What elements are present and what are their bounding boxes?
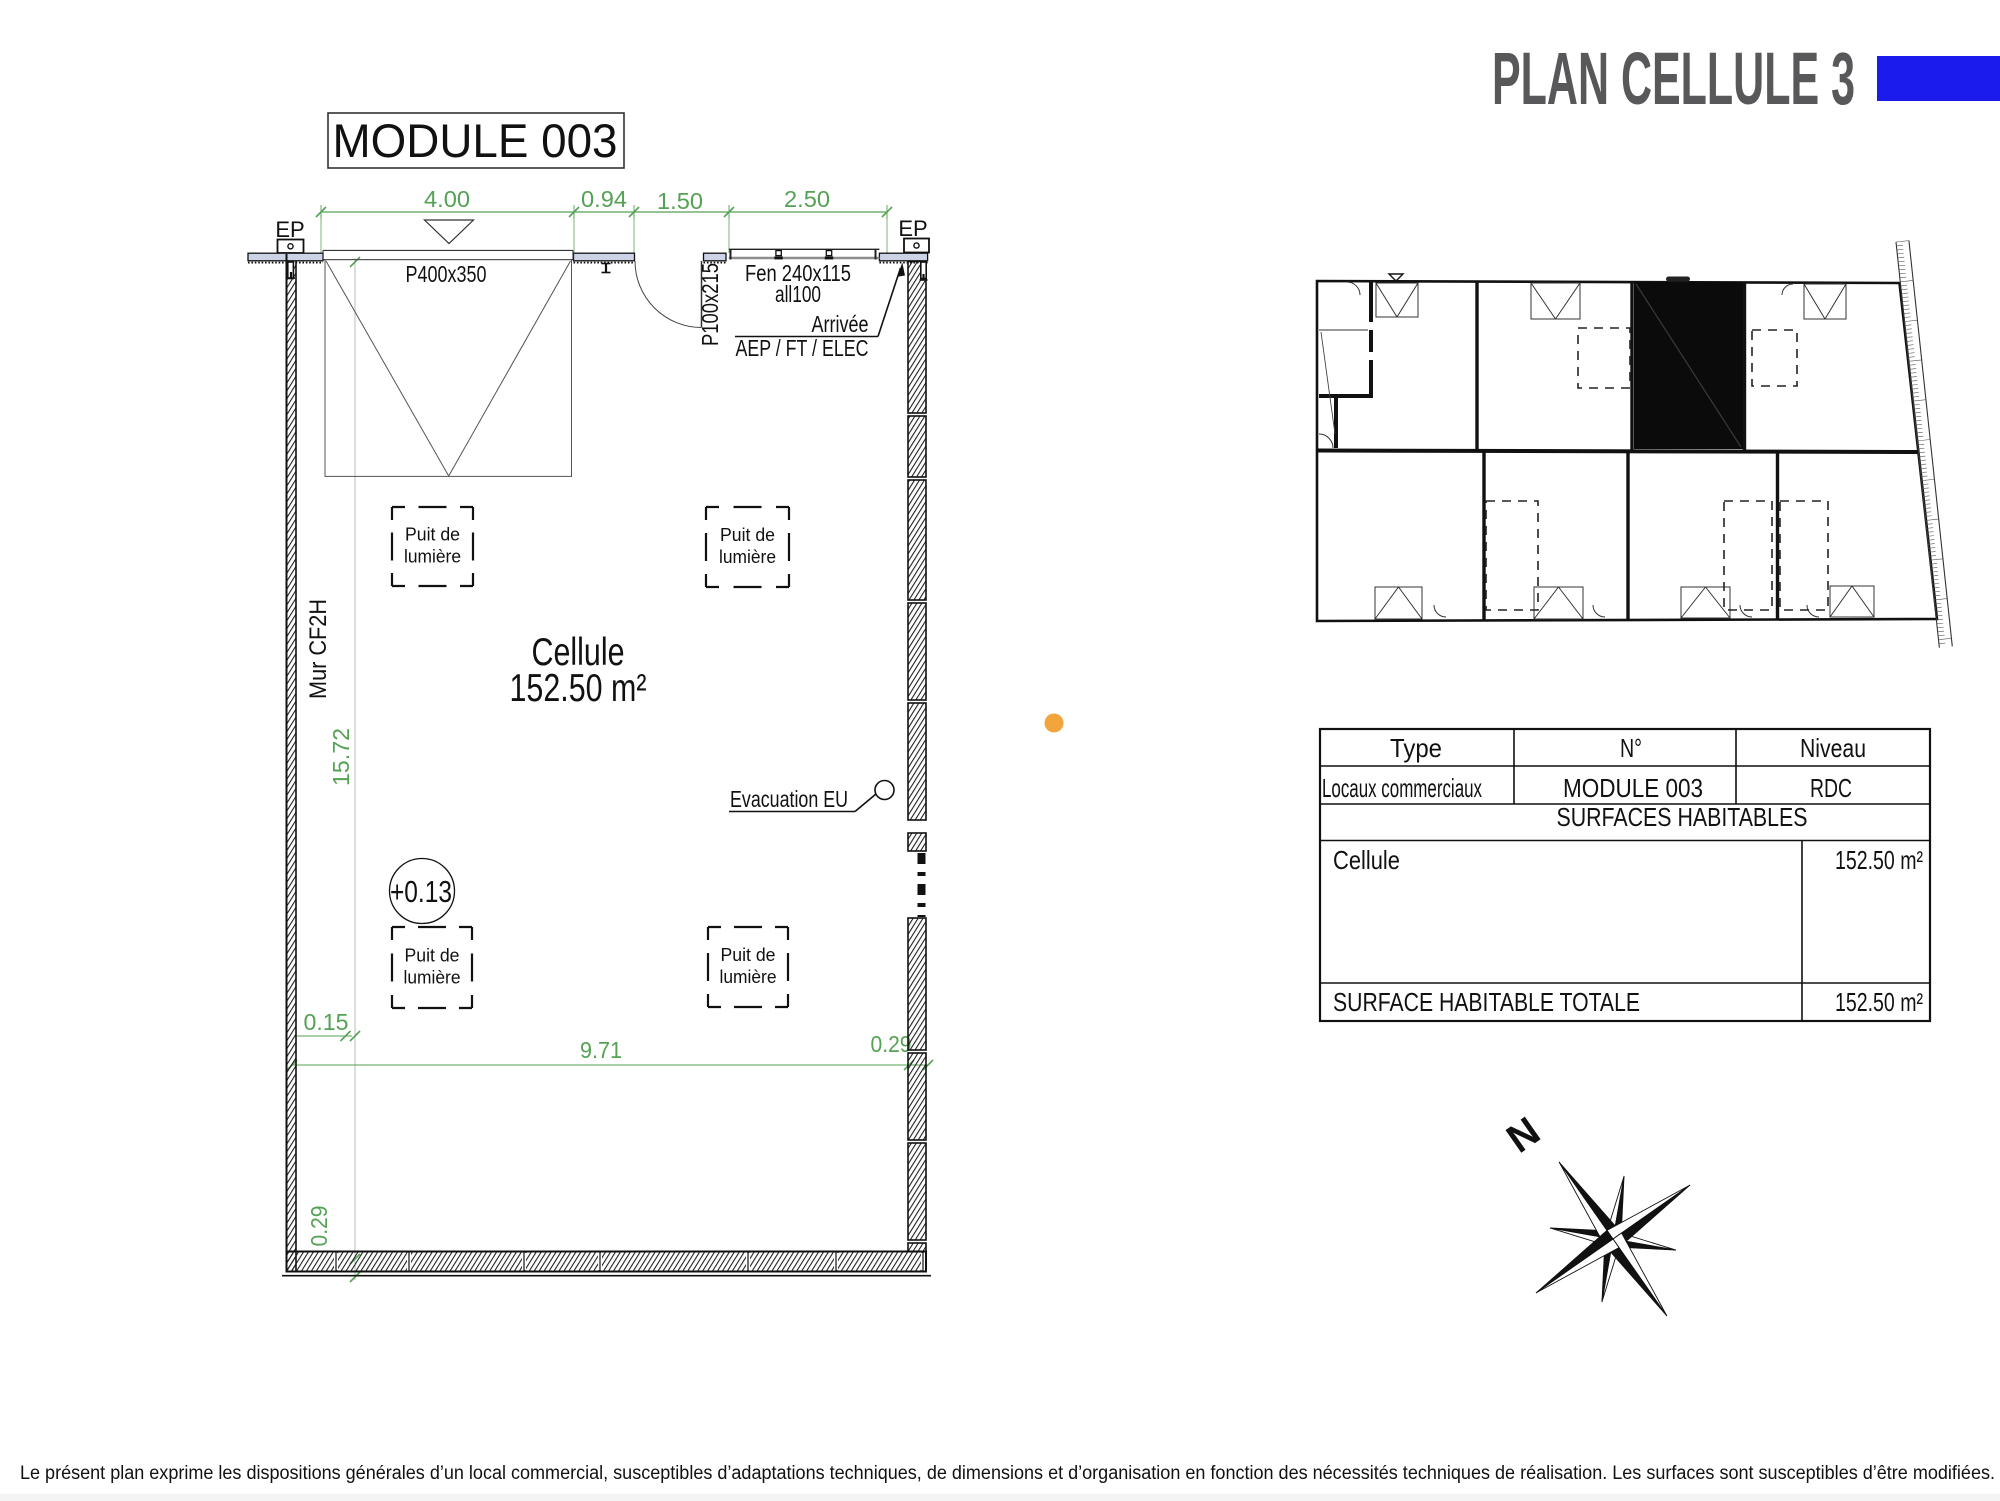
svg-text:4.00: 4.00 — [424, 186, 470, 212]
svg-text:EP: EP — [898, 216, 927, 241]
svg-text:1.50: 1.50 — [657, 188, 703, 214]
svg-text:lumière: lumière — [720, 967, 777, 987]
svg-text:Puit de: Puit de — [720, 525, 775, 545]
svg-text:Le présent plan exprime les di: Le présent plan exprime les dispositions… — [20, 1462, 1995, 1484]
svg-text:MODULE 003: MODULE 003 — [333, 114, 618, 167]
svg-text:PLAN CELLULE 3: PLAN CELLULE 3 — [1492, 37, 1855, 120]
svg-text:P100x215: P100x215 — [697, 263, 723, 346]
svg-text:Cellule: Cellule — [1333, 845, 1400, 875]
svg-text:Mur CF2H: Mur CF2H — [305, 599, 332, 699]
svg-text:15.72: 15.72 — [328, 728, 354, 786]
svg-text:2.50: 2.50 — [784, 186, 830, 212]
svg-text:Puit de: Puit de — [405, 525, 460, 545]
svg-text:0.94: 0.94 — [581, 186, 627, 212]
svg-text:152.50 m²: 152.50 m² — [1835, 845, 1923, 875]
svg-text:+0.13: +0.13 — [390, 874, 452, 909]
svg-text:lumière: lumière — [404, 547, 461, 567]
svg-text:152.50 m²: 152.50 m² — [510, 667, 647, 710]
svg-text:0.29: 0.29 — [306, 1206, 332, 1247]
svg-text:152.50 m²: 152.50 m² — [1835, 987, 1923, 1017]
svg-text:Arrivée: Arrivée — [812, 311, 869, 337]
svg-text:P400x350: P400x350 — [406, 261, 487, 287]
svg-text:Puit de: Puit de — [405, 946, 460, 966]
svg-text:lumière: lumière — [719, 547, 776, 567]
svg-text:0.29: 0.29 — [871, 1031, 912, 1057]
svg-text:Evacuation EU: Evacuation EU — [730, 786, 848, 812]
svg-text:AEP / FT / ELEC: AEP / FT / ELEC — [736, 335, 869, 361]
svg-text:RDC: RDC — [1810, 773, 1852, 803]
svg-text:MODULE 003: MODULE 003 — [1563, 773, 1703, 803]
svg-text:SURFACE HABITABLE TOTALE: SURFACE HABITABLE TOTALE — [1333, 987, 1640, 1017]
svg-text:SURFACES HABITABLES: SURFACES HABITABLES — [1557, 802, 1808, 832]
svg-text:Niveau: Niveau — [1800, 733, 1866, 763]
svg-text:Puit de: Puit de — [721, 945, 776, 965]
svg-text:N°: N° — [1620, 733, 1642, 763]
svg-text:0.15: 0.15 — [304, 1009, 349, 1035]
svg-text:9.71: 9.71 — [580, 1037, 622, 1063]
svg-text:Locaux commerciaux: Locaux commerciaux — [1322, 773, 1482, 803]
svg-text:Type: Type — [1390, 733, 1442, 763]
svg-text:EP: EP — [275, 217, 304, 242]
svg-text:lumière: lumière — [404, 968, 461, 988]
svg-text:all100: all100 — [775, 281, 821, 307]
